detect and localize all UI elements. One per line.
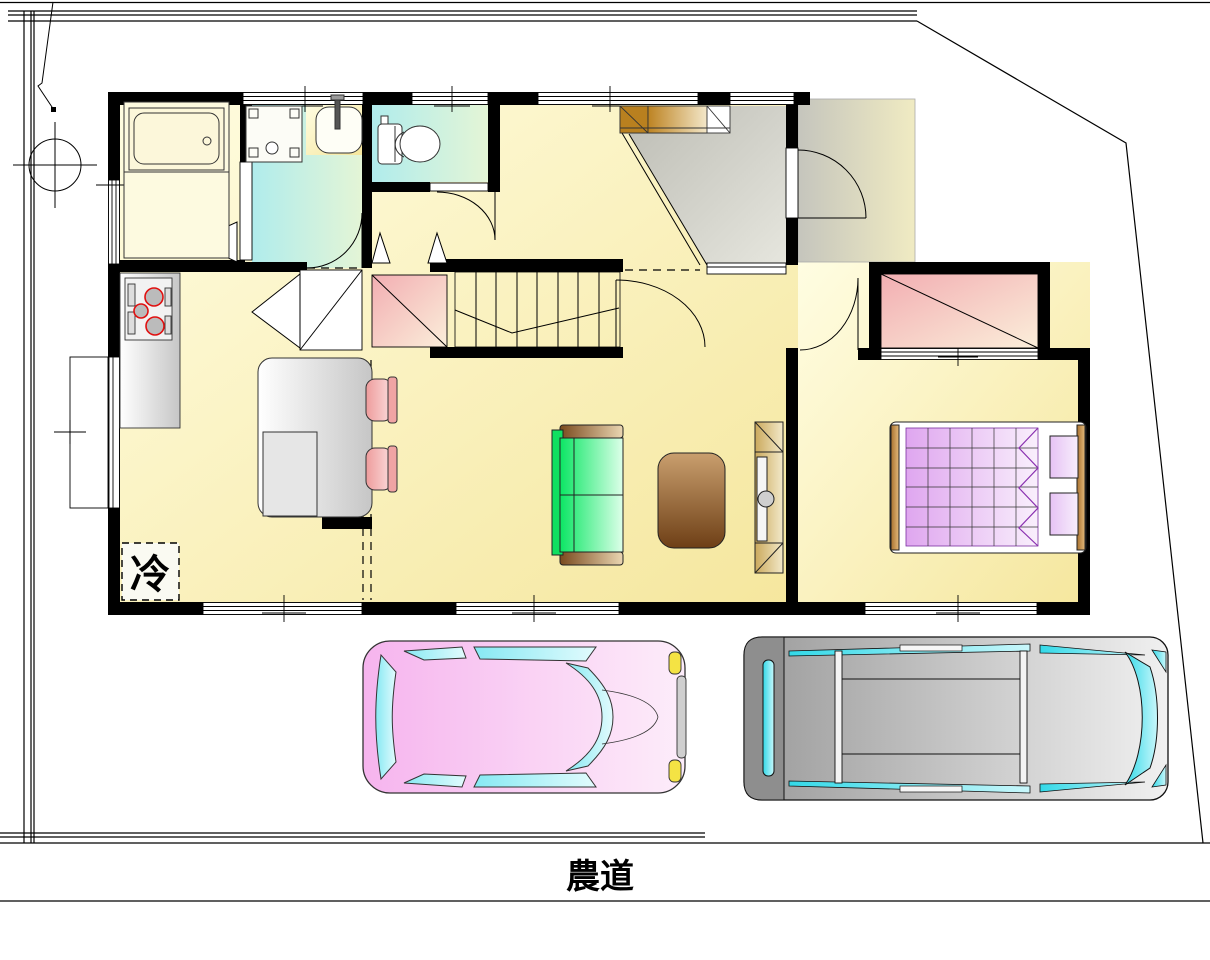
floor-plan-drawing: 冷 xyxy=(0,0,1210,960)
stairs-south-wall xyxy=(430,347,623,358)
entrance-wall-lower xyxy=(786,218,798,265)
bedroom-west-wall xyxy=(786,348,798,602)
refrigerator: 冷 xyxy=(122,543,179,600)
bathroom xyxy=(124,102,229,258)
bedroom xyxy=(890,422,1086,553)
window-genkan-sidelight xyxy=(730,93,794,105)
road-label: 農道 xyxy=(566,857,634,897)
pillow xyxy=(1050,493,1078,535)
genkan-hall-band xyxy=(707,263,786,274)
front-bumper xyxy=(677,676,686,758)
stairs-north-wall xyxy=(430,259,623,272)
shoe-cabinet xyxy=(620,106,730,133)
bay-window-kitchen xyxy=(54,357,120,508)
refrigerator-label: 冷 xyxy=(130,552,170,598)
tv-board xyxy=(755,422,783,573)
van-rear-window xyxy=(763,660,774,776)
bathroom-door-slab xyxy=(240,162,252,260)
burner-icon xyxy=(134,304,148,318)
bathtub xyxy=(129,108,224,170)
stove xyxy=(125,278,172,340)
burner-icon xyxy=(146,317,164,335)
west-wall xyxy=(108,92,120,615)
coffee-table xyxy=(658,453,725,548)
van-roof-rail xyxy=(835,651,842,783)
dining-bench xyxy=(263,432,317,516)
headlight-icon xyxy=(669,652,681,674)
sofa xyxy=(552,425,623,565)
survey-marker-icon xyxy=(13,2,97,208)
kitchen-north-wall xyxy=(108,260,245,272)
burner-icon xyxy=(145,288,163,306)
gray-van xyxy=(744,637,1168,800)
entrance-porch xyxy=(798,99,915,262)
closet-north-wall xyxy=(869,262,1050,274)
toilet-east-wall xyxy=(488,92,500,192)
washroom-toilet-wall xyxy=(362,92,372,268)
pillow xyxy=(1050,436,1078,478)
front-door-opening xyxy=(786,148,798,218)
dining-chair xyxy=(366,377,397,423)
van-roof-rail xyxy=(1020,651,1027,783)
counter-stub-wall xyxy=(322,517,372,529)
bedroom-closet xyxy=(881,274,1038,348)
headlight-icon xyxy=(669,760,681,782)
dining-chair xyxy=(366,446,397,492)
toilet-door-opening xyxy=(430,183,488,191)
floor-plan-canvas: 冷 xyxy=(0,0,1210,960)
bed xyxy=(890,422,1086,553)
washing-machine-pan xyxy=(246,106,302,162)
pink-car xyxy=(363,641,686,793)
